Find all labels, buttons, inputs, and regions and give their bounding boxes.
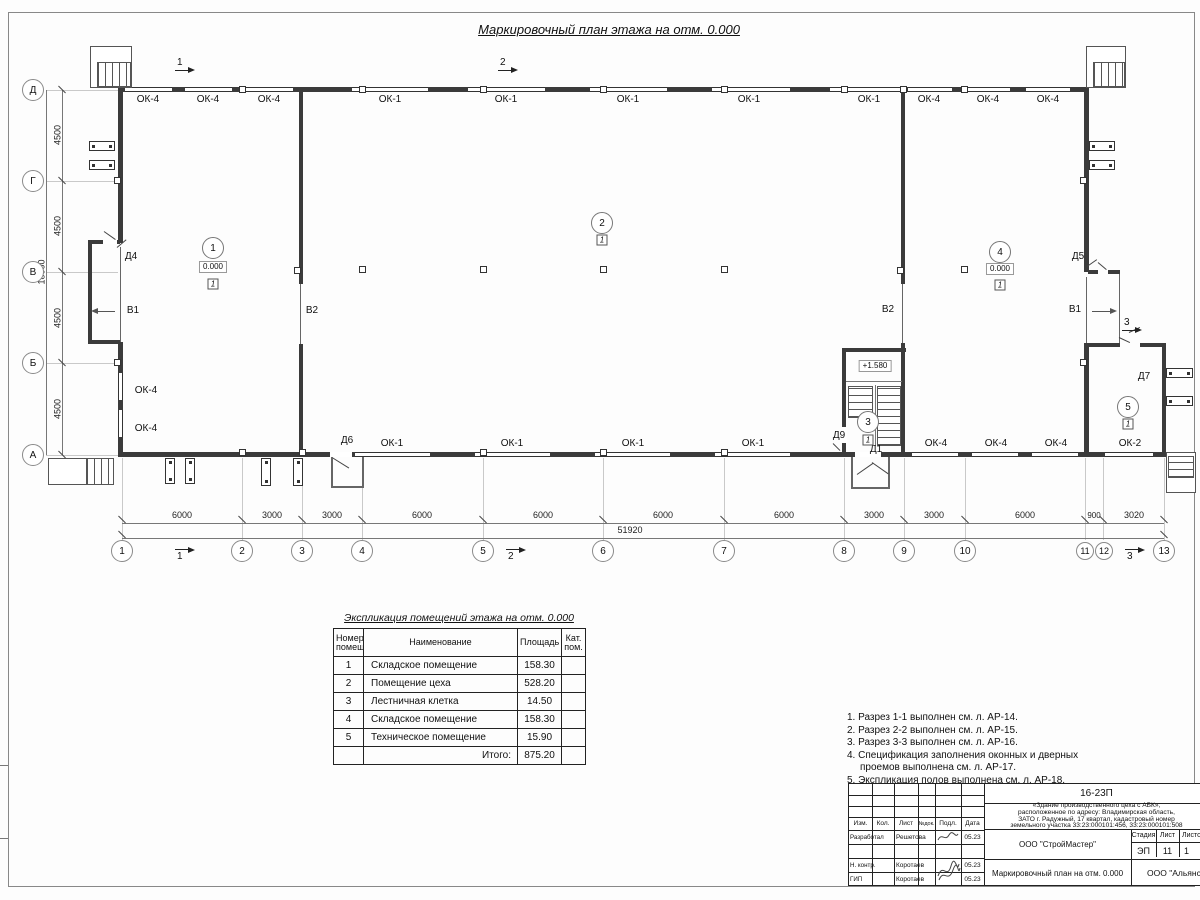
tb-col-izm: Изм. [849, 817, 872, 830]
table-row: 1 Складское помещение 158.30 [334, 657, 586, 675]
window [966, 87, 1010, 92]
door-opening [103, 240, 117, 244]
table-total-row: Итого: 875.20 [334, 747, 586, 765]
tb-sheet-label: Лист [1156, 829, 1179, 842]
tb-name: Решетова [894, 830, 937, 844]
window-label: ОК-4 [135, 424, 158, 434]
note-item: 3. Разрез 3-3 выполнен см. л. АР-16. [847, 737, 1112, 750]
screenshot-root: { "sheet": { "title": "Маркировочный пла… [0, 0, 1200, 900]
tb-org: ООО "СтройМастер" [984, 829, 1131, 859]
column-marker [299, 449, 306, 456]
axis-bubble: В [22, 261, 44, 283]
section-mark: 2 [498, 58, 518, 71]
dim-line [122, 538, 1164, 539]
window [908, 87, 952, 92]
axis-bubble: 5 [472, 540, 494, 562]
dock [1166, 396, 1193, 406]
dock [1166, 368, 1193, 378]
room-schedule-title: Экспликация помещений этажа на отм. 0.00… [333, 612, 585, 624]
cell-cat [562, 657, 586, 675]
door-leaf [872, 462, 889, 474]
cell-number: 1 [334, 657, 364, 675]
door-label: Д5 [1072, 252, 1084, 262]
porch-wall [331, 486, 364, 488]
title-block: Изм. Кол. Лист №док. Подл. Дата Разработ… [848, 783, 1200, 886]
section-arrow-icon [519, 547, 526, 553]
door-leaf [332, 457, 349, 468]
axis-bubble: 6 [592, 540, 614, 562]
tb-object-description: «Здание производственного цеха с АБК», р… [986, 804, 1200, 829]
section-number: 1 [175, 549, 188, 562]
col-header-area: Площадь [518, 629, 562, 657]
floor-type-marker: 1 [208, 279, 219, 290]
section-arrow-icon [1138, 547, 1145, 553]
window-label: ОК-4 [918, 95, 941, 105]
axis-line [46, 181, 118, 182]
axis-bubble: 11 [1076, 542, 1094, 560]
notes-list: 1. Разрез 1-1 выполнен см. л. АР-14. 2. … [847, 712, 1112, 787]
axis-bubble: 2 [231, 540, 253, 562]
axis-line [965, 458, 966, 540]
cell-number: 5 [334, 729, 364, 747]
door-leaf [857, 463, 874, 475]
section-mark: 1 [175, 549, 195, 562]
tb-sheets-label: Листов [1179, 829, 1200, 842]
axis-bubble: Б [22, 352, 44, 374]
window [125, 87, 172, 92]
room-number: 4 [989, 241, 1011, 263]
frame-tick [0, 765, 8, 766]
window [1105, 452, 1153, 457]
window [185, 87, 232, 92]
axis-bubble: Г [22, 170, 44, 192]
axis-bubble: 12 [1095, 542, 1113, 560]
window-label: ОК-4 [1037, 95, 1060, 105]
window-label: ОК-4 [197, 95, 220, 105]
axis-line [844, 458, 845, 540]
cell-cat [562, 675, 586, 693]
cell-name: Складское помещение [364, 657, 518, 675]
dock [89, 141, 115, 151]
exterior-stair-treads [1168, 456, 1194, 478]
axis-bubble: 7 [713, 540, 735, 562]
window [118, 373, 123, 400]
column-marker [600, 449, 607, 456]
room-elevation: 0.000 [986, 263, 1014, 275]
tb-col-kol: Кол. [872, 817, 894, 830]
cell-name: Помещение цеха [364, 675, 518, 693]
column-marker [721, 449, 728, 456]
dock [89, 160, 115, 170]
floor-type-marker: 1 [597, 235, 608, 246]
window-label: ОК-4 [258, 95, 281, 105]
col-header-number: Номер помещ. [334, 629, 364, 657]
column-marker [841, 86, 848, 93]
cell-cat [562, 711, 586, 729]
tb-stage-label: Стадия [1131, 829, 1156, 842]
section-number: 1 [175, 58, 188, 71]
dim-label: 4500 [54, 216, 63, 236]
dim-line [122, 523, 1164, 524]
axis-bubble: 10 [954, 540, 976, 562]
room-number: 3 [857, 411, 879, 433]
room-number: 5 [1117, 396, 1139, 418]
gate-label: В2 [306, 306, 318, 316]
dim-label: 4500 [54, 308, 63, 328]
room5-wall [1084, 343, 1120, 347]
column-marker [480, 86, 487, 93]
section-number: 2 [506, 549, 519, 562]
gate-arrow-head [91, 308, 98, 314]
tb-date: 05.23 [961, 872, 984, 886]
column-marker [721, 86, 728, 93]
tb-sheets-value: 1 [1179, 842, 1200, 859]
gate-line [120, 247, 121, 342]
door-label: Д9 [833, 431, 845, 441]
tb-role: Разработал [850, 830, 894, 844]
window-label: ОК-4 [925, 439, 948, 449]
dock [165, 458, 175, 484]
window-label: ОК-1 [622, 439, 645, 449]
tb-col-data: Дата [961, 817, 984, 830]
axis-bubble: 8 [833, 540, 855, 562]
table-row: 5 Техническое помещение 15.90 [334, 729, 586, 747]
gate-line [300, 284, 301, 344]
window-label: ОК-1 [858, 95, 881, 105]
door-leaf [833, 443, 841, 451]
dim-label: 6000 [653, 511, 673, 520]
table-row: 2 Помещение цеха 528.20 [334, 675, 586, 693]
tb-role: ГИП [850, 872, 894, 886]
door-opening [330, 452, 352, 457]
signature [936, 831, 960, 843]
section-mark: 3 [1122, 318, 1142, 331]
axis-line [1164, 458, 1165, 540]
cell-cat [562, 747, 586, 765]
column-marker [359, 86, 366, 93]
window [1026, 87, 1070, 92]
window-label: ОК-4 [985, 439, 1008, 449]
tb-doc-title: Маркировочный план на отм. 0.000 [984, 859, 1131, 887]
axis-bubble: 4 [351, 540, 373, 562]
door-label: Д6 [341, 436, 353, 446]
axis-bubble: 13 [1153, 540, 1175, 562]
dim-label: 6000 [172, 511, 192, 520]
section-arrow-icon [1135, 327, 1142, 333]
exterior-stair-treads [97, 62, 131, 87]
cell-name: Техническое помещение [364, 729, 518, 747]
window-label: ОК-1 [501, 439, 524, 449]
column-marker [1080, 177, 1087, 184]
axis-bubble: 1 [111, 540, 133, 562]
window [118, 410, 123, 437]
cell-number [334, 747, 364, 765]
wall-interior [299, 92, 303, 284]
vestibule-wall [88, 240, 92, 344]
dim-label: 3000 [924, 511, 944, 520]
column-marker [721, 266, 728, 273]
tb-role: Н. контр. [850, 858, 894, 872]
tb-name: Коротаев [894, 872, 937, 886]
window [912, 452, 958, 457]
axis-line [603, 458, 604, 540]
axis-line [483, 458, 484, 540]
floor-type-marker: 1 [1123, 419, 1134, 430]
column-marker [239, 449, 246, 456]
dim-label: 3000 [322, 511, 342, 520]
window-label: ОК-1 [379, 95, 402, 105]
col-header-cat: Кат. пом. [562, 629, 586, 657]
cell-number: 2 [334, 675, 364, 693]
gate-arrow-head [1110, 308, 1117, 314]
stair-landing-line [846, 381, 902, 382]
door-leaf [1119, 337, 1130, 343]
axis-bubble: А [22, 444, 44, 466]
axis-line [46, 90, 118, 91]
column-marker [294, 267, 301, 274]
cell-area: 528.20 [518, 675, 562, 693]
axis-line [724, 458, 725, 540]
column-marker [359, 266, 366, 273]
note-item: 4. Спецификация заполнения оконных и две… [847, 750, 1112, 775]
window [972, 452, 1018, 457]
room-elevation: 0.000 [199, 261, 227, 273]
gate-line [902, 284, 903, 343]
total-label: Итого: [364, 747, 518, 765]
door-label: Д7 [1138, 372, 1150, 382]
exterior-stair-treads [1093, 62, 1125, 87]
col-header-name: Наименование [364, 629, 518, 657]
dim-label: 3020 [1124, 511, 1144, 520]
cell-area: 14.50 [518, 693, 562, 711]
window-label: ОК-4 [135, 386, 158, 396]
dim-label: 4500 [54, 399, 63, 419]
corridor-line [1119, 274, 1120, 344]
window [246, 87, 293, 92]
tb-date: 05.23 [961, 858, 984, 872]
drawing-sheet: Маркировочный план этажа на отм. 0.000 [0, 0, 1200, 900]
floor-type-marker: 1 [995, 280, 1006, 291]
dock [1089, 160, 1115, 170]
gate-label: В1 [1069, 305, 1081, 315]
dim-label: 6000 [1015, 511, 1035, 520]
cell-number: 3 [334, 693, 364, 711]
cell-name: Складское помещение [364, 711, 518, 729]
column-marker [114, 177, 121, 184]
door-label: Д4 [125, 252, 137, 262]
door-label: Д1 [870, 445, 882, 455]
frame-tick [0, 838, 8, 839]
dim-label: 4500 [54, 125, 63, 145]
room-number: 2 [591, 212, 613, 234]
cell-name: Лестничная клетка [364, 693, 518, 711]
cell-area: 158.30 [518, 657, 562, 675]
floor-type-marker: 1 [863, 435, 874, 446]
door-leaf [104, 231, 116, 240]
wall-interior [299, 344, 303, 452]
column-marker [961, 266, 968, 273]
tb-sheet-value: 11 [1156, 842, 1179, 859]
section-mark: 3 [1125, 549, 1145, 562]
gate-line [1086, 277, 1087, 343]
dim-label: 6000 [412, 511, 432, 520]
axis-line [904, 458, 905, 540]
gate-arrow [97, 311, 115, 312]
porch-wall [851, 487, 890, 489]
window-label: ОК-1 [738, 95, 761, 105]
dim-label: 3000 [864, 511, 884, 520]
column-marker [961, 86, 968, 93]
corridor-wall [1088, 270, 1098, 274]
wall-interior [901, 92, 905, 284]
tb-col-list: Лист [894, 817, 918, 830]
window-label: ОК-4 [1045, 439, 1068, 449]
tb-stage-value: ЭП [1131, 842, 1156, 859]
tb-date: 05.23 [961, 830, 984, 844]
column-marker [239, 86, 246, 93]
column-marker [897, 267, 904, 274]
axis-bubble: 3 [291, 540, 313, 562]
cell-cat [562, 693, 586, 711]
section-number: 2 [498, 58, 511, 71]
window-label: ОК-1 [495, 95, 518, 105]
axis-line [242, 458, 243, 540]
column-marker [114, 359, 121, 366]
dock [293, 458, 303, 486]
porch-wall [362, 457, 364, 488]
table-row: 4 Складское помещение 158.30 [334, 711, 586, 729]
door-leaf [1098, 262, 1107, 270]
axis-line [1103, 458, 1104, 540]
column-marker [1080, 359, 1087, 366]
total-area: 875.20 [518, 747, 562, 765]
section-arrow-icon [511, 67, 518, 73]
floor-plan: +1.580 [0, 0, 1200, 600]
tb-org2: ООО "Альянс" [1131, 859, 1200, 887]
cell-area: 158.30 [518, 711, 562, 729]
dock [261, 458, 271, 486]
axis-line [46, 363, 118, 364]
room-schedule-table: Номер помещ. Наименование Площадь Кат. п… [333, 628, 586, 765]
stair-wall [842, 348, 906, 352]
axis-line [122, 458, 123, 540]
note-item: 2. Разрез 2-2 выполнен см. л. АР-15. [847, 725, 1112, 738]
tb-doc-code: 16-23П [984, 784, 1200, 803]
dock [185, 458, 195, 484]
cell-cat [562, 729, 586, 747]
window-label: ОК-1 [381, 439, 404, 449]
stair-landing-elevation: +1.580 [859, 360, 892, 372]
tb-col-podp: Подл. [935, 817, 961, 830]
axis-line [46, 455, 118, 456]
window [1032, 452, 1078, 457]
gate-label: В2 [882, 305, 894, 315]
axis-bubble: Д [22, 79, 44, 101]
section-number: 3 [1125, 549, 1138, 562]
dim-label: 900 [1087, 511, 1100, 520]
wall-interior [901, 343, 905, 452]
section-mark: 1 [175, 58, 195, 71]
dim-label: 3000 [262, 511, 282, 520]
porch-wall [851, 457, 853, 489]
section-arrow-icon [188, 67, 195, 73]
window-label: ОК-4 [977, 95, 1000, 105]
note-item: 1. Разрез 1-1 выполнен см. л. АР-14. [847, 712, 1112, 725]
stair-flight-up [877, 386, 901, 446]
table-row: 3 Лестничная клетка 14.50 [334, 693, 586, 711]
room-number: 1 [202, 237, 224, 259]
column-marker [480, 449, 487, 456]
axis-bubble: 9 [893, 540, 915, 562]
column-marker [600, 86, 607, 93]
cell-number: 4 [334, 711, 364, 729]
room-schedule: Экспликация помещений этажа на отм. 0.00… [333, 612, 585, 765]
column-marker [480, 266, 487, 273]
gate-arrow [1092, 311, 1110, 312]
section-number: 3 [1122, 318, 1135, 331]
axis-line [46, 272, 118, 273]
exterior-stair-treads [86, 458, 114, 485]
dim-total-label: 51920 [617, 526, 642, 535]
window-label: ОК-1 [617, 95, 640, 105]
signature [935, 858, 961, 884]
cell-area: 15.90 [518, 729, 562, 747]
window-label: ОК-4 [137, 95, 160, 105]
window-label: ОК-2 [1119, 439, 1142, 449]
vestibule-wall [88, 340, 120, 344]
dock [1089, 141, 1115, 151]
window [355, 452, 430, 457]
porch-wall [331, 457, 333, 488]
column-marker [600, 266, 607, 273]
tb-col-ndok: №док. [918, 817, 935, 830]
axis-line [1085, 458, 1086, 540]
tb-name: Коротаев [894, 858, 937, 872]
wall-left [118, 87, 123, 243]
section-mark: 2 [506, 549, 526, 562]
gate-label: В1 [127, 306, 139, 316]
window-label: ОК-1 [742, 439, 765, 449]
table-header-row: Номер помещ. Наименование Площадь Кат. п… [334, 629, 586, 657]
dim-label: 6000 [774, 511, 794, 520]
dim-label: 6000 [533, 511, 553, 520]
column-marker [900, 86, 907, 93]
section-arrow-icon [188, 547, 195, 553]
